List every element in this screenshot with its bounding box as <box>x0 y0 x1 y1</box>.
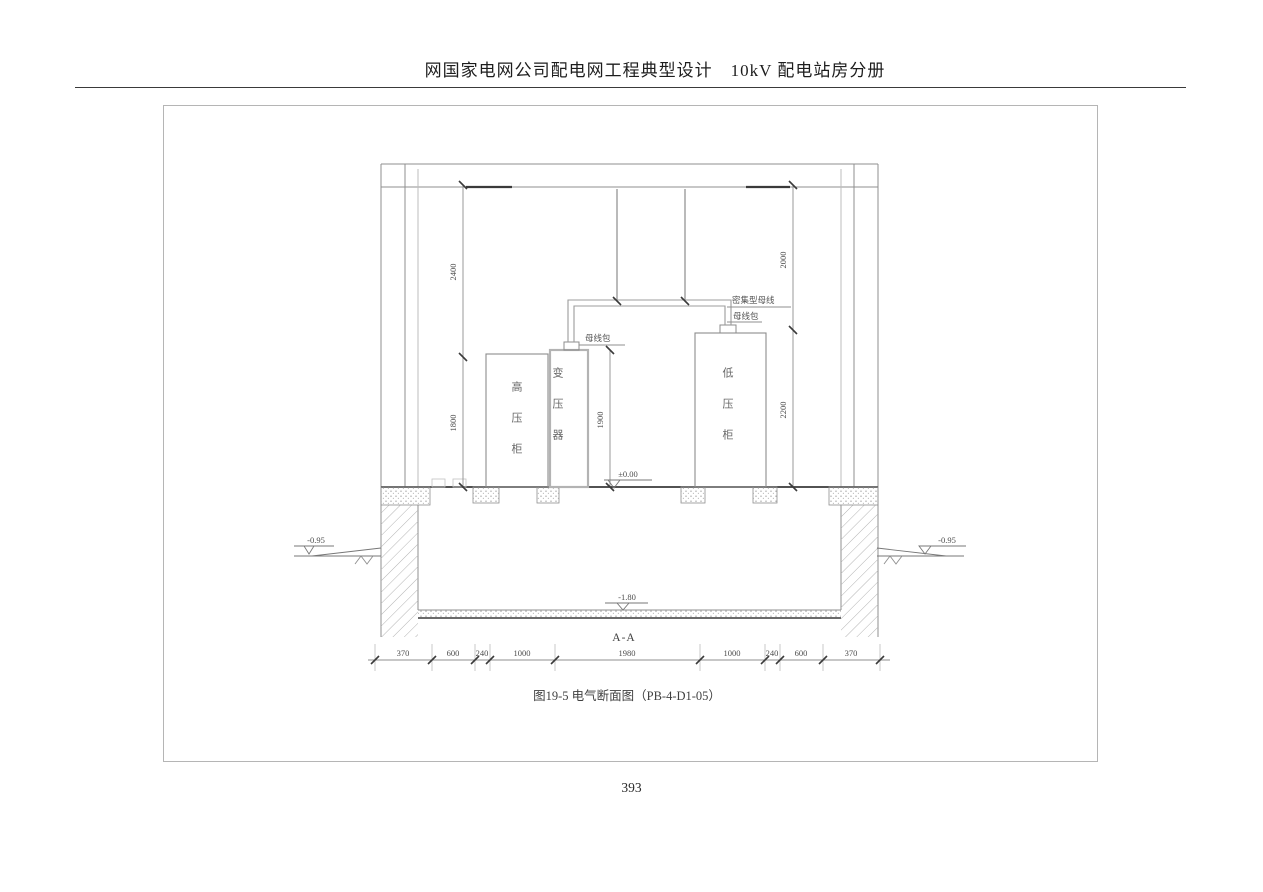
wall-hatch-right <box>841 505 878 637</box>
level-ground-left: -0.95 <box>307 535 325 545</box>
dim-bottom-6: 1000 <box>724 648 741 658</box>
dimension-bottom: 370 600 240 1000 1980 1000 240 600 370 <box>368 644 890 671</box>
room-structure <box>381 164 878 637</box>
level-floor: ±0.00 <box>618 469 638 479</box>
dim-left-lower: 1800 <box>448 415 458 432</box>
dim-bottom-2: 600 <box>447 648 460 658</box>
dim-bottom-9: 370 <box>845 648 858 658</box>
dim-bottom-3: 240 <box>476 648 489 658</box>
label-bus-wrap-lower: 母线包 <box>585 333 611 343</box>
dim-bottom-4: 1000 <box>514 648 531 658</box>
label-bus-wrap-upper: 母线包 <box>733 311 759 321</box>
dimension-left: 2400 1800 <box>448 181 512 491</box>
dim-right-lower: 2200 <box>778 402 788 419</box>
section-label: A-A <box>612 632 635 644</box>
page-number: 393 <box>0 780 1263 796</box>
level-ground-right: -0.95 <box>938 535 956 545</box>
dim-bottom-8: 600 <box>795 648 808 658</box>
transformer-label: 变压器 <box>551 367 562 460</box>
electrical-section-drawing: 2400 1800 1900 2000 2200 <box>0 0 1263 892</box>
bus-wrap-box-lv <box>720 325 736 333</box>
label-dense-busway: 密集型母线 <box>732 295 775 305</box>
lv-cabinet-label: 低压柜 <box>721 367 732 460</box>
bus-wrap-box-transformer <box>564 342 579 350</box>
dim-bottom-1: 370 <box>397 648 410 658</box>
dim-bottom-7: 240 <box>766 648 779 658</box>
dimension-right: 2000 2200 <box>746 181 797 491</box>
wall-hatch-left <box>381 505 418 637</box>
figure-caption: 图19-5 电气断面图（PB-4-D1-05） <box>497 685 757 704</box>
document-page: 网国家电网公司配电网工程典型设计 10kV 配电站房分册 <box>0 0 1263 892</box>
level-trench-bottom: -1.80 <box>618 592 636 602</box>
dim-bottom-5: 1980 <box>619 648 636 658</box>
annotation-leaders: 密集型母线 母线包 母线包 <box>579 295 791 345</box>
hv-cabinet-label: 高压柜 <box>510 381 521 474</box>
dimension-transformer: 1900 <box>595 346 614 491</box>
dim-transformer-height: 1900 <box>595 412 605 429</box>
dim-left-upper: 2400 <box>448 264 458 281</box>
dim-right-upper: 2000 <box>778 252 788 269</box>
